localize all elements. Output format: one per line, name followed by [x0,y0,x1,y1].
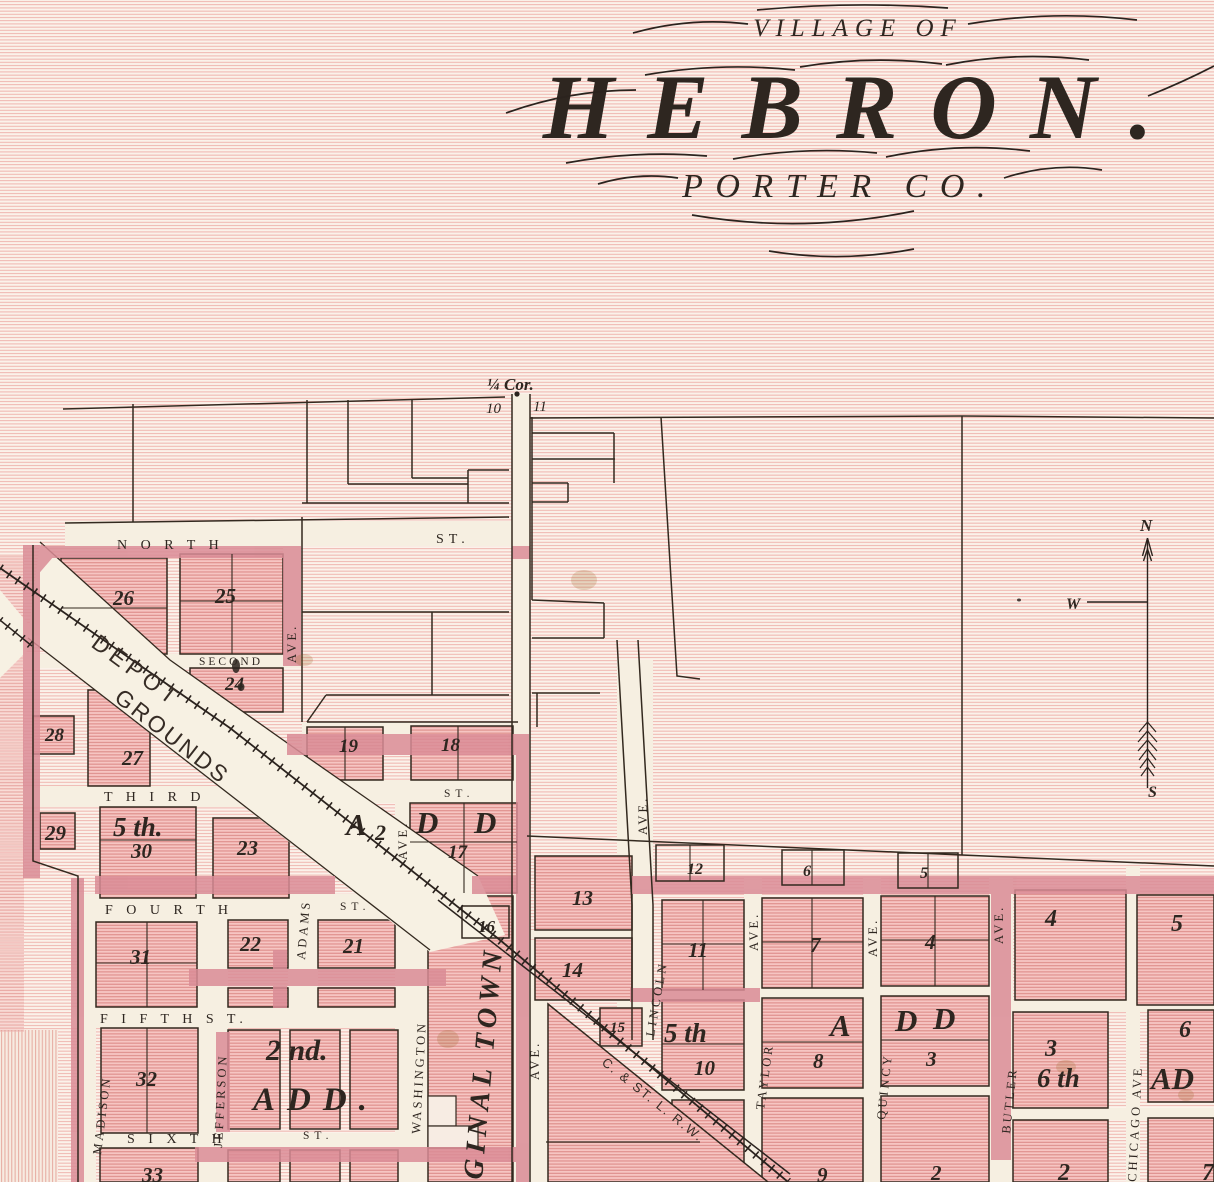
svg-text:6: 6 [1179,1017,1191,1043]
svg-text:5: 5 [920,865,928,882]
svg-text:S: S [1148,784,1157,801]
svg-text:29: 29 [44,821,67,845]
svg-text:4: 4 [1044,906,1057,932]
svg-text:AVE.: AVE. [992,905,1006,944]
svg-text:30: 30 [130,839,153,863]
svg-text:D: D [473,805,496,840]
svg-text:32: 32 [135,1067,158,1091]
svg-text:HEBRON.: HEBRON. [542,56,1186,158]
svg-text:2 nd.: 2 nd. [265,1034,328,1067]
svg-text:10: 10 [694,1056,716,1080]
svg-text:F O U R T H: F O U R T H [105,903,233,918]
svg-text:AVE.: AVE. [866,918,880,957]
svg-text:2: 2 [1057,1160,1070,1182]
svg-text:2: 2 [930,1161,942,1182]
svg-text:33: 33 [141,1163,163,1182]
svg-text:5 th: 5 th [664,1018,707,1048]
svg-text:A: A [828,1008,851,1043]
svg-text:2: 2 [374,820,386,845]
svg-text:F I F T H S T.: F I F T H S T. [100,1012,248,1027]
svg-text:27: 27 [121,746,145,770]
svg-text:ST.: ST. [303,1130,333,1142]
svg-text:12: 12 [687,861,703,878]
svg-text:AVE.: AVE. [285,624,299,663]
svg-text:W: W [1066,596,1082,613]
svg-text:ST.: ST. [436,532,470,547]
svg-text:22: 22 [239,932,262,956]
svg-text:9: 9 [817,1163,828,1182]
svg-text:SECOND: SECOND [199,656,263,668]
svg-text:13: 13 [572,886,593,910]
svg-text:D: D [415,805,438,840]
svg-text:15: 15 [610,1020,626,1036]
svg-text:11: 11 [688,938,708,962]
svg-text:PORTER CO.: PORTER CO. [681,168,998,205]
svg-text:AVE.: AVE. [528,1041,542,1080]
svg-text:17: 17 [448,842,469,863]
svg-text:6: 6 [803,863,811,880]
svg-text:VILLAGE OF: VILLAGE OF [753,15,963,42]
svg-text:N O R T H: N O R T H [117,538,224,553]
svg-text:31: 31 [129,945,151,969]
svg-text:25: 25 [214,584,236,608]
svg-text:3: 3 [925,1047,937,1071]
svg-text:ST.: ST. [444,788,474,800]
svg-text:D: D [894,1003,917,1038]
svg-text:11: 11 [533,399,547,415]
svg-text:28: 28 [44,725,65,746]
svg-text:14: 14 [562,958,583,982]
svg-text:AVE.: AVE. [747,912,761,951]
svg-text:7: 7 [810,933,822,957]
svg-text:5: 5 [1171,911,1183,937]
svg-text:8: 8 [813,1049,824,1073]
svg-text:AVE.: AVE. [636,796,650,835]
svg-text:N: N [1139,516,1153,535]
svg-text:AD: AD [1149,1061,1194,1096]
svg-text:ADD.: ADD. [251,1082,379,1118]
svg-text:16: 16 [478,917,496,936]
svg-text:23: 23 [236,836,258,860]
svg-text:3: 3 [1044,1036,1057,1062]
svg-text:AVE.: AVE. [396,821,410,860]
svg-text:5 th.: 5 th. [113,812,163,842]
svg-text:26: 26 [112,586,135,610]
svg-text:24: 24 [224,674,244,695]
svg-text:6 th: 6 th [1037,1063,1080,1093]
svg-text:A: A [344,807,367,842]
svg-text:¼ Cor.: ¼ Cor. [487,375,534,394]
svg-text:10: 10 [486,401,502,417]
svg-text:21: 21 [342,934,364,958]
svg-text:ST.: ST. [340,901,370,913]
svg-text:18: 18 [441,735,461,756]
svg-text:D: D [932,1001,955,1036]
svg-text:4: 4 [924,930,936,954]
svg-text:19: 19 [339,736,359,757]
svg-text:T H I R D: T H I R D [104,790,206,805]
svg-text:7: 7 [1202,1160,1214,1182]
